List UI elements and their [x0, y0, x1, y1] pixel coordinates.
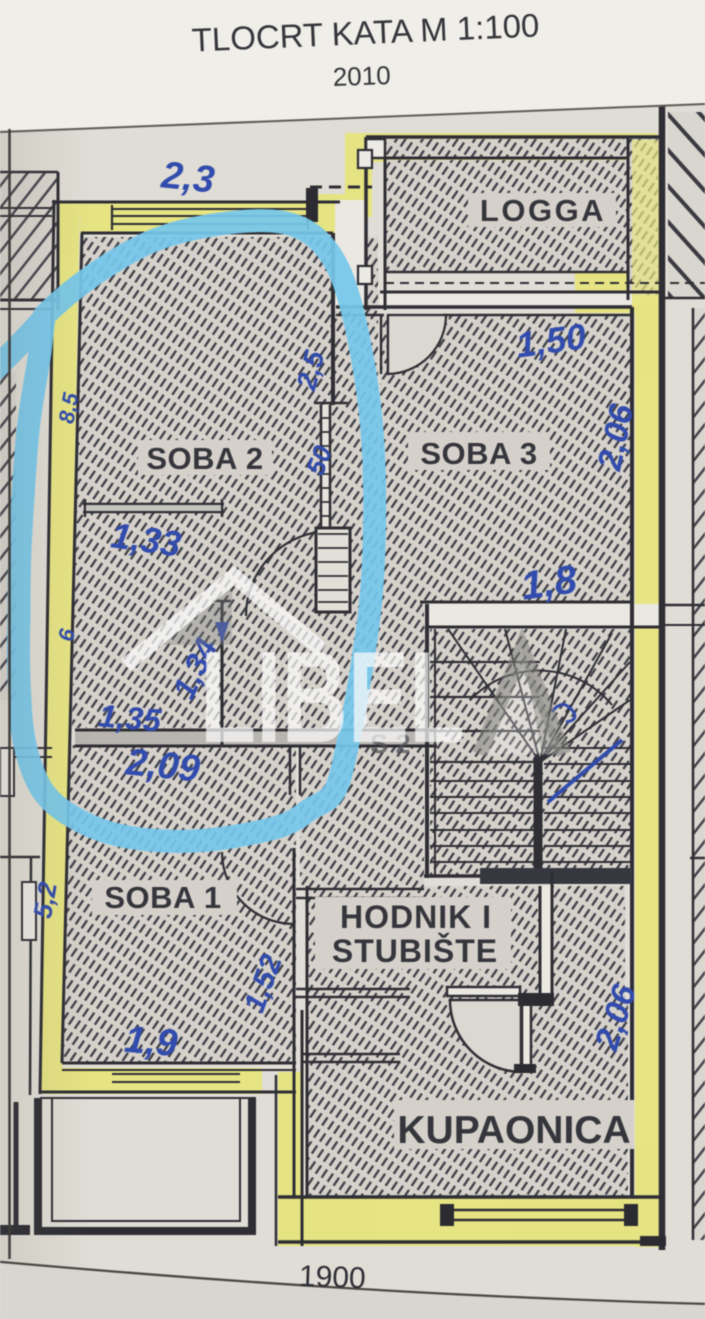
- svg-text:1900: 1900: [298, 1260, 366, 1295]
